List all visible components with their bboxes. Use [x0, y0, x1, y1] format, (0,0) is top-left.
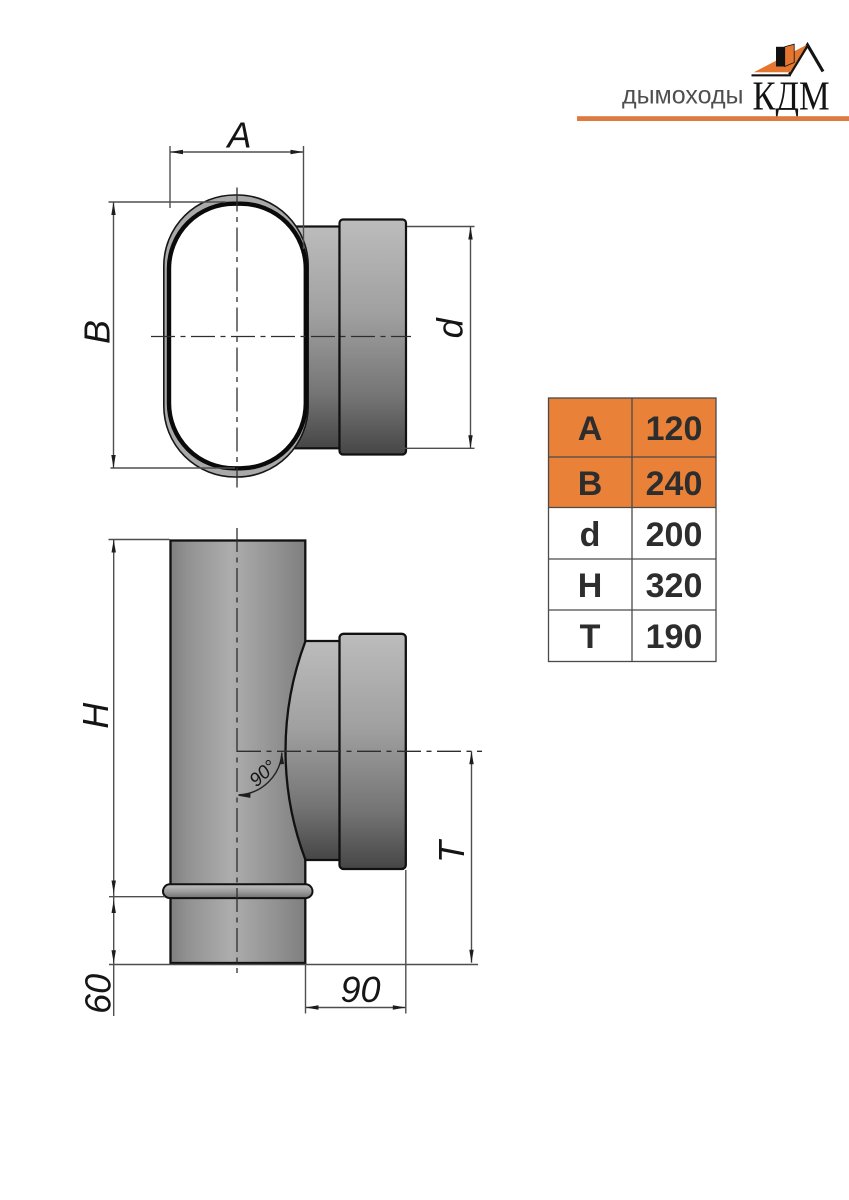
svg-text:60: 60 — [77, 974, 118, 1014]
svg-text:B: B — [578, 465, 603, 503]
svg-text:90: 90 — [340, 969, 380, 1010]
svg-text:d: d — [429, 317, 470, 338]
svg-text:d: d — [580, 516, 601, 554]
svg-text:дымоходы: дымоходы — [622, 82, 744, 110]
svg-text:H: H — [75, 702, 116, 729]
svg-text:190: 190 — [646, 618, 703, 656]
svg-text:120: 120 — [646, 410, 703, 448]
svg-text:T: T — [431, 838, 472, 863]
svg-text:200: 200 — [646, 516, 703, 554]
svg-text:B: B — [77, 320, 118, 344]
svg-text:240: 240 — [646, 465, 703, 503]
svg-text:H: H — [578, 567, 603, 605]
svg-text:КДМ: КДМ — [753, 74, 830, 119]
svg-text:A: A — [578, 410, 603, 448]
svg-text:A: A — [225, 115, 251, 156]
svg-text:T: T — [580, 618, 601, 656]
svg-text:320: 320 — [646, 567, 703, 605]
